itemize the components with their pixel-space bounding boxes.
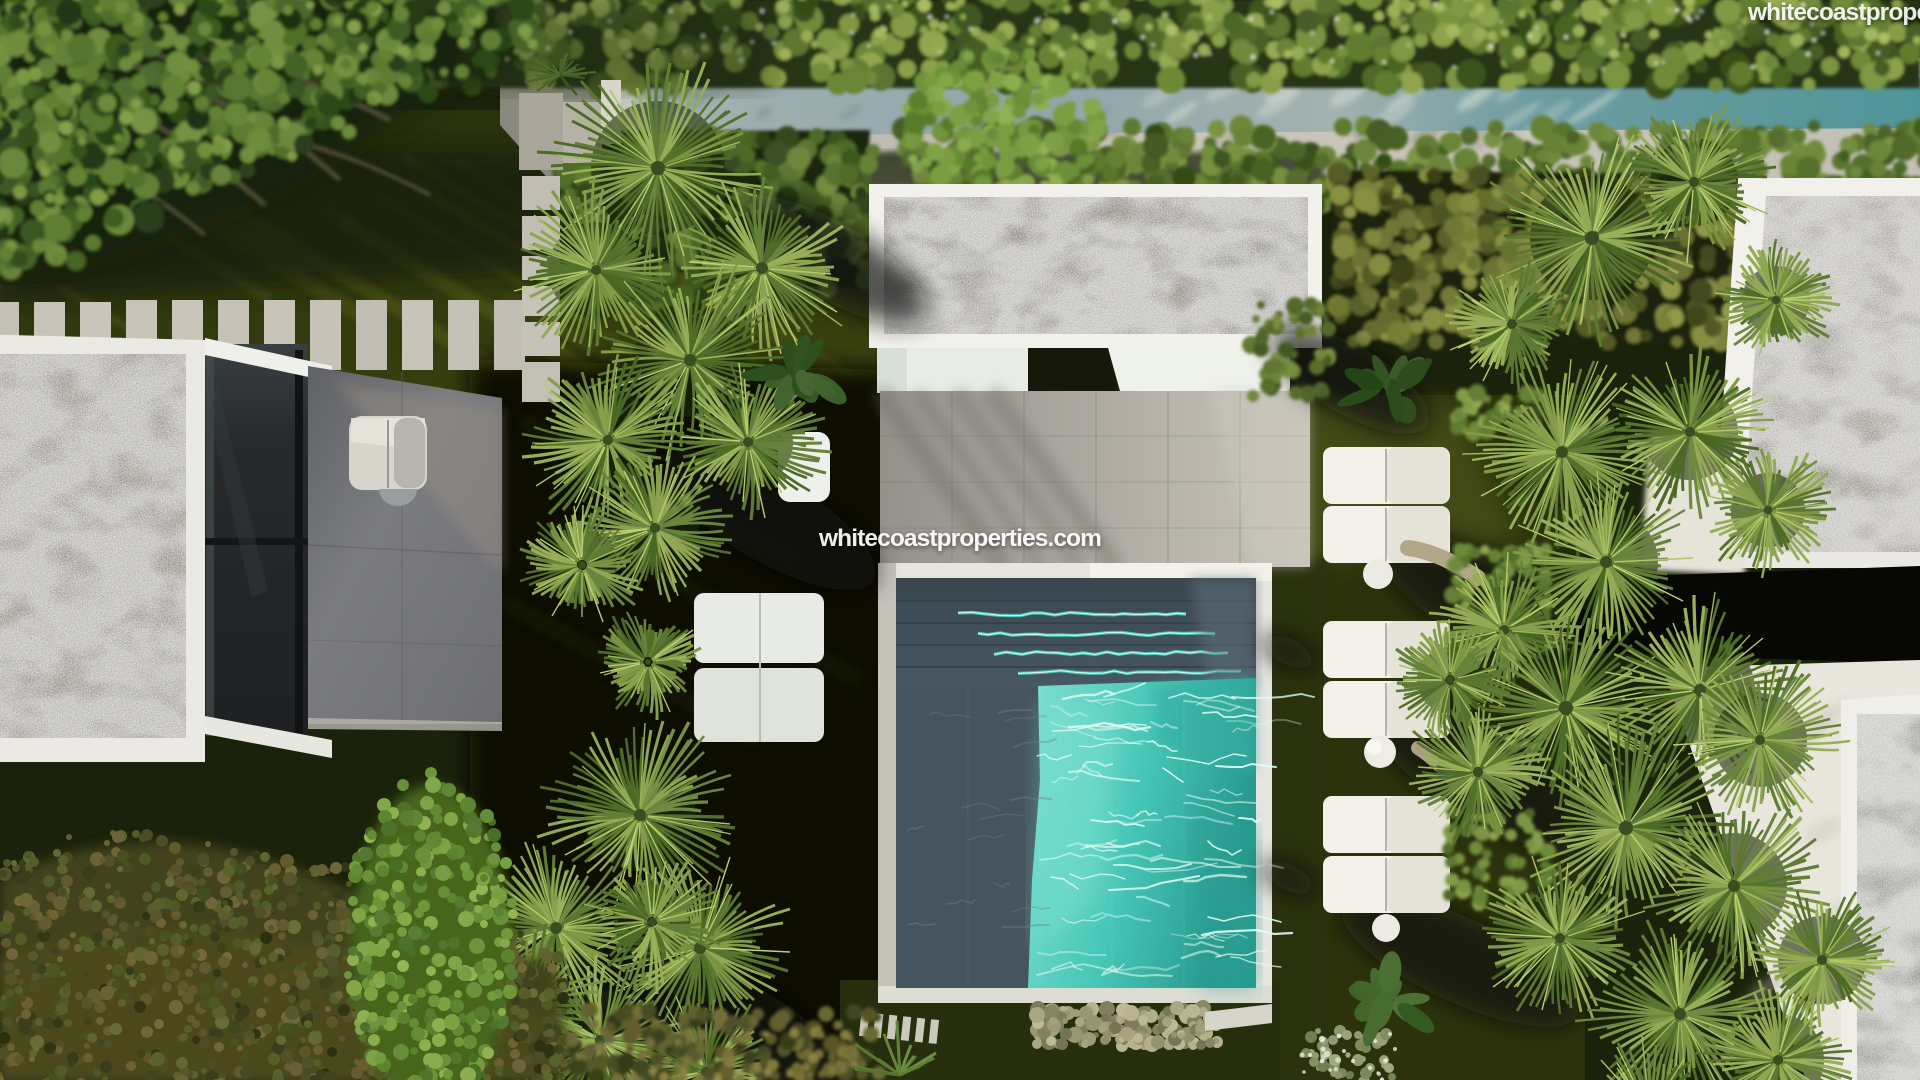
svg-text:whitecoastproperties.com: whitecoastproperties.com: [818, 525, 1101, 552]
svg-text:whitecoastproperties.com: whitecoastproperties.com: [1747, 0, 1920, 26]
